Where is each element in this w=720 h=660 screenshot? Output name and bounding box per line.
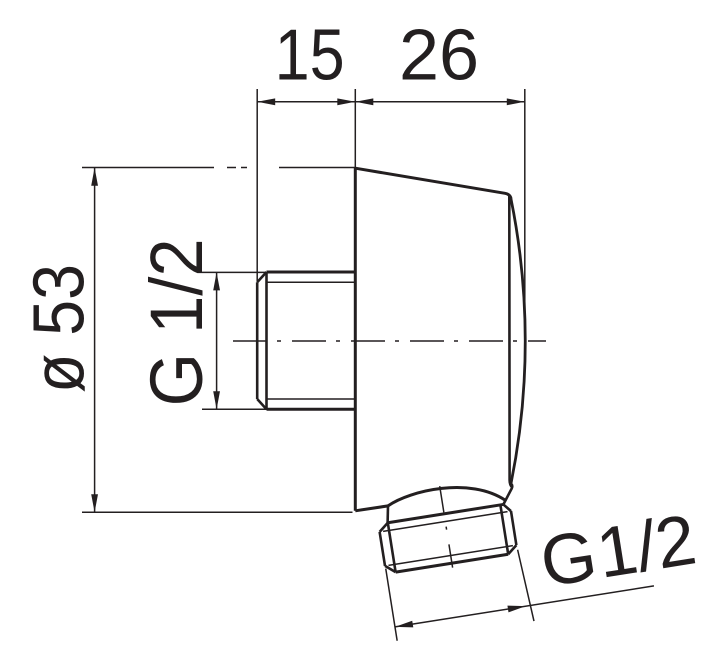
svg-text:ø 53: ø 53 [20, 264, 100, 393]
svg-text:26: 26 [399, 16, 479, 96]
svg-text:15: 15 [275, 16, 345, 96]
svg-text:G 1/2: G 1/2 [135, 238, 218, 406]
